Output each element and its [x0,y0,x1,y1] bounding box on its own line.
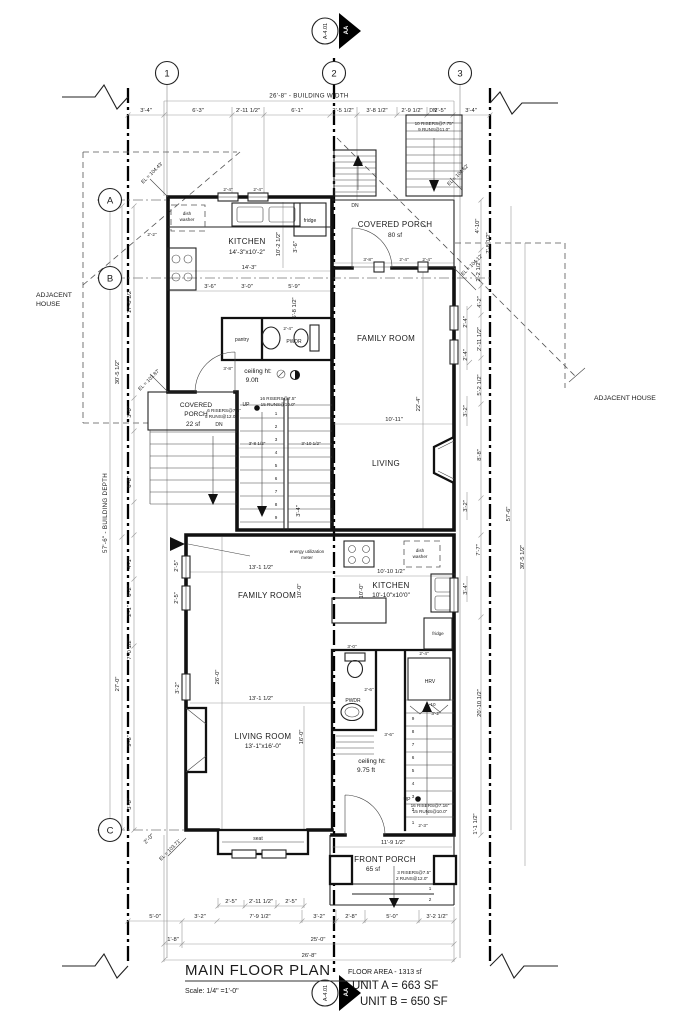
room-living-a: LIVING [372,459,400,468]
dim-top-6: 2'-9 1/2" [401,108,422,114]
room-porch-a: COVERED PORCH [358,220,433,229]
step-number: 5 [412,768,415,773]
dim-front-porch-w: 11'-9 1/2" [381,840,405,846]
room-front-porch: FRONT PORCH [354,855,416,864]
room-porch-a-size: 80 sf [388,232,402,239]
stair-note-front-porch: 3 RISERS@7.5" [397,870,431,875]
stair-porch-left [150,430,237,504]
dim-fb-d: 26'-0" [215,670,221,685]
dim-bottom4: 26'-8" [302,953,317,959]
section-cut: AA [344,25,350,34]
step-number: 8 [275,502,278,507]
dim-side-yard-left: 2'-2" [147,232,157,237]
stair-mid-treads [240,405,332,522]
pwdr-b-sink [341,704,363,721]
building-depth-label: 57'-6" - BUILDING DEPTH [102,473,109,553]
dishwasher-b-label: dish [416,548,425,553]
step-number: 2 [429,897,432,902]
up-label: UP [243,402,251,408]
porch-pillar [434,856,456,884]
step-number: 9 [412,716,415,721]
dim-bottom2-1: 3'-2" [194,914,206,920]
step-number: 9 [275,515,278,520]
break-symbol-top-left [62,85,128,109]
dim-top-4: 2'-5 1/2" [332,108,353,114]
dim-bottom2-0: 5'-0" [149,914,161,920]
dim-left-6: 2'-1" [127,605,133,617]
dim-family-a-w: 10'-11" [385,417,403,423]
adjacent-house-right: ADJACENT HOUSE [594,395,656,402]
step-number: 6 [275,476,278,481]
window-seat-living-b [186,708,206,772]
dim-right-5: 2'-11 1/2" [477,327,483,351]
dim-top-3: 6'-1" [291,108,303,114]
energy-meter-symbol [170,537,185,551]
dim-porch-a-2: 2'-4" [422,257,432,262]
break-symbol-top-right [490,92,558,114]
dim-win-left-b-2: 3'-2" [175,682,181,694]
kitchen-a-sink [232,203,300,226]
section-sheet: A-4.01 [323,23,329,39]
dim-left-5: 6'-2" [127,585,133,597]
seat-label: seat [253,836,263,842]
dim-left-4: 4'-1" [127,557,133,569]
room-kitchen-a: KITCHEN [228,237,265,246]
section-arrow-icon [339,13,361,49]
dim-porch-a-0: 3'-8" [363,257,373,262]
room-porch-left-size: 22 sf [186,421,200,428]
porch-pillar [330,856,352,884]
dim-ka-s4: 3'-6" [293,241,299,253]
dim-kitchen-a-d: 10'-2 1/2" [276,232,282,256]
dim-fb-w1: 13'-1 1/2" [249,565,273,571]
stair-note-front-porch: 2 RUNS@12.0" [396,876,428,881]
stair-note-unit-b: 16 RISERS@7.16" [411,803,450,808]
unit-a-area: UNIT A = 663 SF [352,980,438,992]
dim-right-14: 3'-4" [463,583,469,595]
floor-plan-sheet: 1 2 3 A B C A-4.01 AA A-4.01 AA ADJACENT… [0,0,684,1024]
dim-bottom3-0: 1'-8" [167,937,179,943]
grid-label-3: 3 [457,69,462,80]
stair-mid-stringer [284,398,288,530]
grid-bubbles: 1 2 3 A B C [99,62,472,842]
dim-bottom2-6: 3'-2 1/2" [426,914,447,920]
step-number: 10 [430,702,436,707]
pwdr-b-toilet [345,653,365,661]
dim-porch-a-1: 2'-4" [399,257,409,262]
dim-left-8: 27'-0" [115,677,121,692]
stair-winder-b [336,736,374,754]
dn-label: DN [215,422,223,428]
step-number: 7 [275,489,278,494]
dim-stair-b-1: 2'-3" [418,823,428,828]
stair-note-mid: 15 RUNS@10.0" [261,402,296,407]
dim-bottom2-2: 7'-9 1/2" [249,914,270,920]
dishwasher-a-label: dish [183,211,192,216]
dim-kb-d1: 10'-0" [297,584,303,599]
dim-hrv-2: 3'-2" [431,711,441,716]
dim-right-6: 2'-4" [463,349,469,361]
bay-window-living-a [434,437,454,483]
dim-left-2: 3'-0" [127,406,133,418]
ceiling-height-a-val: 9.0ft [246,377,259,384]
dishwasher-b-label: washer [413,554,428,559]
floor-area-note: FLOOR AREA - 1313 sf [348,969,422,976]
dim-family-a-d: 22'-4" [416,397,422,412]
dim-right-11: 57'-6" [506,507,512,522]
doors-windows [182,193,458,858]
dim-pwdr-b-2: 2'-6" [364,687,374,692]
room-living-b-size: 13'-1"x16'-0" [245,743,282,750]
dim-ka-s2: 3'-0" [241,284,253,290]
dim-stair-mid-0: 3'-8 1/2" [249,441,266,446]
fridge-a-label: fridge [304,218,317,224]
dim-right-7: 5'-2 1/2" [477,374,483,395]
grid-label-1: 1 [164,69,169,80]
dim-top-5: 3'-8 1/2" [366,108,387,114]
fridge-b-label: fridge [432,631,444,636]
stair-top-center [334,150,376,196]
dim-left-11: 2'-0" [143,833,155,845]
dim-hrv-1: 2'-4" [419,651,429,656]
room-pwdr-b: PWDR [345,698,361,704]
room-family-a: FAMILY ROOM [357,334,415,343]
dim-bottom2-3: 3'-2" [313,914,325,920]
step-number: 3 [275,437,278,442]
elevation-marker: EL = 104.62' [446,163,470,187]
dim-hall-door: 3'-8" [223,366,233,371]
dim-left-9: 9'-6" [127,735,133,747]
dim-right-0: 4'-10" [475,219,481,234]
dim-left-0: 17'-8 1/2" [127,289,133,313]
dim-top-2: 2'-11 1/2" [236,108,260,114]
room-kitchen-b: KITCHEN [372,581,409,590]
dim-right-15: 20'-10 1/2" [477,689,483,717]
stair-note-unit-b: 15 RUNS@10.0" [413,809,448,814]
stair-note-left-porch: 6 RISERS@7.5" [207,408,241,413]
dim-right-10: 3'-2" [463,500,469,512]
break-symbol-bottom-left [62,954,128,978]
dim-left-3: 6'-6" [127,476,133,488]
dishwasher-a-label: washer [180,217,195,222]
step-number: 6 [412,755,415,760]
room-pantry: pantry [235,337,249,343]
dim-stair-mid-1: 3'-10 1/2" [301,441,321,446]
unit-b-area: UNIT B = 650 SF [360,996,448,1008]
dim-right-9: 8'-8" [477,449,483,461]
elevation-marker: EL = 103.87' [137,368,161,392]
dim-pwdr-b-1: 3'-0" [347,644,357,649]
room-family-b: FAMILY ROOM [238,591,296,600]
room-living-b: LIVING ROOM [235,732,292,741]
range-a [168,248,196,290]
drawing-scale: Scale: 1/4" =1'-0" [185,988,239,995]
dn-label: DN [429,108,437,114]
dim-top-8: 3'-4" [465,108,477,114]
dn-label: DN [351,203,359,209]
dim-kitchen-a-w: 14'-3" [242,265,257,271]
stairs [150,115,462,908]
stair-note-top-right: 10 RISERS@7.75" [415,121,454,126]
dim-right-4: 2'-4" [463,316,469,328]
break-symbol-bottom-right [490,954,558,978]
grid-label-a: A [107,196,114,207]
dim-bottom1-1: 2'-11 1/2" [249,899,273,905]
section-sheet: A-4.01 [323,985,329,1001]
step-number: 1 [412,820,415,825]
dim-ka-s3: 5'-9" [288,284,300,290]
building-width-label: 26'-8" - BUILDING WIDTH [269,93,348,100]
dim-win-top-2: 2'-4" [253,187,263,192]
stair-note-top-right: 9 RUNS@11.0" [418,127,450,132]
dim-right-8: 3'-2" [463,405,469,417]
step-number: 7 [412,742,415,747]
grid-label-2: 2 [331,69,336,80]
section-marker-top: A-4.01 AA [312,13,361,49]
energy-meter-label: energy utilization [290,549,325,554]
grid-label-b: B [107,274,113,285]
pwdr-a-sink [262,327,280,349]
floor-plan-drawing: 1 2 3 A B C A-4.01 AA A-4.01 AA ADJACENT… [0,0,684,1024]
dim-win-top-1: 2'-4" [223,187,233,192]
ceiling-height-b-val: 9.75 ft [357,767,375,774]
stair-note-left-porch: 5 RUNS@12.0" [205,414,237,419]
dim-pwdr-a: 2'-4" [283,326,293,331]
dim-lb-d: 16'-0" [299,730,305,745]
dim-win-left-b-1: 2'-5" [174,592,180,604]
dim-right-1: 7'-8 1/2" [486,232,492,253]
dim-win-left-b-0: 2'-5" [174,560,180,572]
room-pwdr-a: PWDR [286,339,302,345]
ceiling-height-b: ceiling ht: [358,758,386,765]
drawing-title: MAIN FLOOR PLAN [185,962,331,979]
room-kitchen-b-size: 10'-10"x10'0" [372,592,411,599]
dim-top-1: 6'-3" [192,108,204,114]
dim-kb-w: 10'-10 1/2" [377,569,405,575]
dim-right-16: 1'-1 1/2" [473,813,479,834]
step-number: 2 [275,424,278,429]
dim-top-0: 3'-4" [140,108,152,114]
dim-right-13: 30'-5 1/2" [520,545,526,569]
step-number: 1 [429,886,432,891]
step-number: 1 [275,411,278,416]
dim-ka-s1: 3'-6" [204,284,216,290]
dim-fb-w2: 13'-1 1/2" [249,696,273,702]
section-cut: AA [344,987,350,996]
energy-meter-label: meter [301,555,313,560]
dim-bottom1-2: 2'-5" [285,899,297,905]
dim-bottom1-0: 2'-5" [225,899,237,905]
step-number: 4 [275,450,278,455]
step-number: 5 [275,463,278,468]
ceiling-height-a: ceiling ht: [244,368,272,375]
dim-kb-d2: 10'-0" [359,584,365,599]
step-number: 3 [412,794,415,799]
dim-hall-b: 3'-6" [384,732,394,737]
dim-left-7: 7'-0 1/2" [127,638,133,659]
up-label: UP [404,797,412,803]
elevation-marker: EL = 103.71' [158,838,182,862]
dim-bottom3-1: 25'-0" [311,937,326,943]
dim-ka-s5: 5'-8 1/2" [292,297,298,318]
dim-stair-mid-2: 3'-4" [296,505,302,517]
dim-bottom2-5: 5'-0" [386,914,398,920]
kitchen-b-island [332,598,386,623]
grid-label-c: C [107,826,114,837]
dim-bottom2-4: 2'-8" [345,914,357,920]
adjacent-house-left: ADJACENT [36,292,72,299]
adjacent-house-left: HOUSE [36,301,61,308]
hrv-label: HRV [425,679,436,685]
range-b [344,541,374,567]
step-number: 2 [412,807,415,812]
dim-left-1: 30'-5 1/2" [115,360,121,384]
room-kitchen-a-size: 14'-3"x10'-2" [229,249,266,256]
step-number: 4 [412,781,415,786]
dim-left-10: 3'-8" [127,798,133,810]
dim-right-3: 4'-2" [477,296,483,308]
dim-right-12: 7'-7" [476,544,482,556]
step-number: 8 [412,729,415,734]
room-front-porch-size: 65 sf [366,866,380,873]
stair-note-mid: 16 RISERS@7.5" [260,396,297,401]
